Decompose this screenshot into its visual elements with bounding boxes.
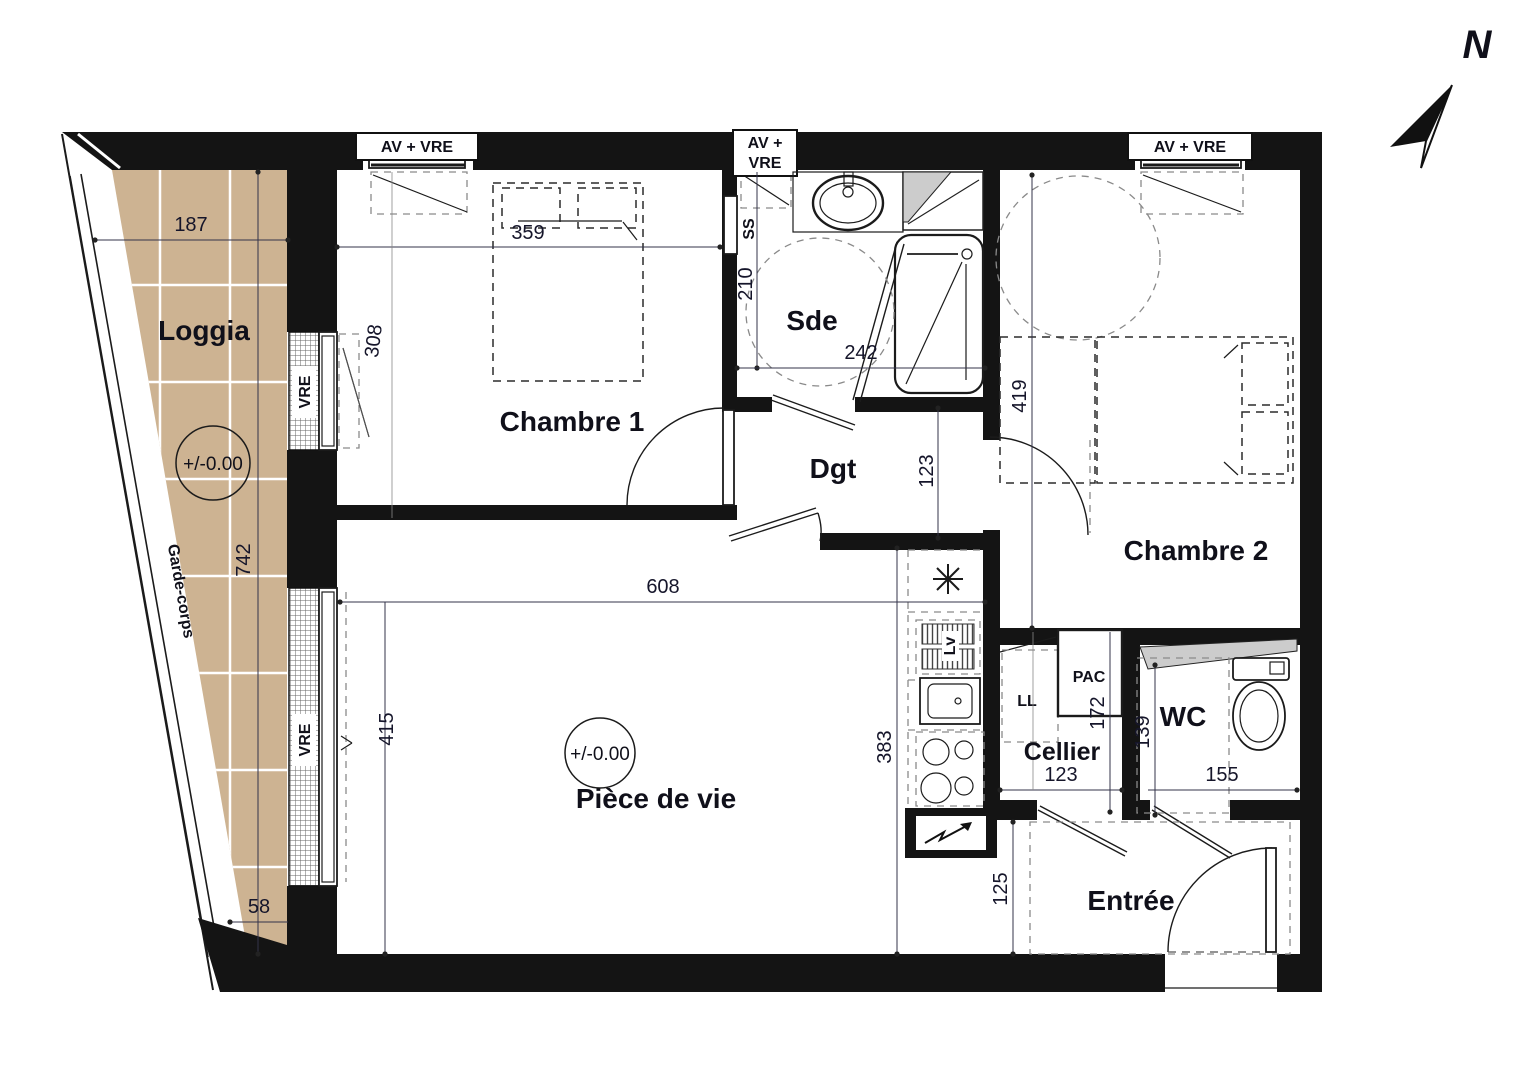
pdv-door-leaf [731, 513, 818, 541]
svg-text:419: 419 [1009, 379, 1031, 412]
window-chambre2: AV + VRE [1128, 133, 1252, 214]
dim-chambre2-height: 419 [1009, 172, 1035, 630]
svg-text:383: 383 [874, 730, 896, 763]
vre-upper-label: VRE [297, 375, 314, 408]
vre-lower-label: VRE [297, 723, 314, 756]
vre-window-upper: VRE [289, 332, 369, 450]
level-loggia: +/-0.00 [183, 454, 243, 475]
svg-text:308: 308 [361, 323, 387, 359]
svg-text:155: 155 [1205, 764, 1238, 786]
dishwasher-label: Lv [942, 637, 959, 656]
svg-text:742: 742 [233, 543, 255, 576]
svg-text:125: 125 [990, 872, 1012, 905]
electrical-panel [916, 816, 986, 850]
dim-pdv-width: 608 [337, 576, 987, 605]
leader-308 [343, 348, 369, 437]
dim-vre-upper: 308 [361, 323, 387, 359]
kitchen: Lv [908, 550, 984, 808]
window3-label: AV + VRE [1154, 139, 1227, 156]
label-cellier: Cellier [1024, 738, 1101, 766]
svg-text:242: 242 [844, 342, 877, 364]
svg-text:608: 608 [646, 576, 679, 598]
cellier-door-leaf [1038, 810, 1125, 856]
svg-text:139: 139 [1132, 715, 1154, 748]
chambre2-door-arc [990, 437, 1088, 535]
svg-text:123: 123 [916, 454, 938, 487]
dim-dgt-width: 123 [916, 405, 941, 540]
vre-window-lower: VRE [289, 588, 352, 886]
wc-door-leaf [1152, 810, 1230, 858]
svg-text:187: 187 [174, 214, 207, 236]
dim-kitchen-height: 383 [874, 545, 900, 956]
label-chambre2: Chambre 2 [1124, 535, 1269, 566]
floor-plan-drawing: AV + VRE AV + VRE AV + VRE VRE VRE [0, 0, 1523, 1080]
chambre1-bed [493, 183, 643, 381]
heat-pump-label: PAC [1073, 669, 1106, 686]
toilet-tank [1233, 658, 1289, 680]
sde-door-leaf [771, 400, 853, 430]
label-chambre1: Chambre 1 [500, 406, 645, 437]
entrance-door-leaf [1266, 848, 1276, 952]
floor-plan-page: AV + VRE AV + VRE AV + VRE VRE VRE [0, 0, 1523, 1080]
shower-screen [853, 242, 897, 400]
dim-pdv-height: 415 [376, 602, 398, 957]
north-label: N [1463, 23, 1493, 67]
label-dgt: Dgt [810, 453, 857, 484]
towel-radiator [724, 196, 737, 254]
washing-machine-label: LL [1017, 693, 1037, 710]
north-needle-dark [1390, 85, 1452, 147]
window1-label: AV + VRE [381, 139, 454, 156]
window2-label-line2: VRE [749, 155, 782, 172]
chambre2-bed [1097, 337, 1293, 483]
window-sde: AV + VRE [733, 130, 797, 208]
entrance-door-arc [1168, 848, 1272, 952]
window-chambre1: AV + VRE [356, 133, 478, 214]
label-loggia: Loggia [158, 315, 250, 346]
dim-chambre1-width: 359 [334, 222, 722, 250]
label-entree: Entrée [1087, 885, 1174, 916]
label-ss: SS [741, 218, 758, 240]
label-sde: Sde [786, 305, 837, 336]
label-wc: WC [1160, 701, 1207, 732]
chambre2-furniture [996, 176, 1293, 483]
svg-text:58: 58 [248, 896, 270, 918]
toilet-bowl [1233, 682, 1285, 750]
svg-text:359: 359 [511, 222, 544, 244]
loggia-area [100, 170, 287, 954]
window2-label-line1: AV + [748, 135, 783, 152]
dim-cellier-width: 123 [997, 764, 1124, 793]
north-arrow: N [1390, 23, 1493, 168]
chambre2-turning-circle [996, 176, 1160, 340]
svg-text:123: 123 [1044, 764, 1077, 786]
fridge-symbol [933, 564, 963, 594]
dim-wc-width: 155 [1148, 764, 1300, 793]
svg-text:172: 172 [1087, 696, 1109, 729]
svg-text:210: 210 [735, 267, 757, 300]
dim-sde-height: 210 [735, 172, 760, 371]
level-piece-de-vie: +/-0.00 [570, 744, 630, 765]
svg-text:415: 415 [376, 712, 398, 745]
kitchen-sink [920, 678, 980, 724]
chambre1-door-leaf [723, 410, 734, 505]
sde-sink [813, 176, 883, 230]
